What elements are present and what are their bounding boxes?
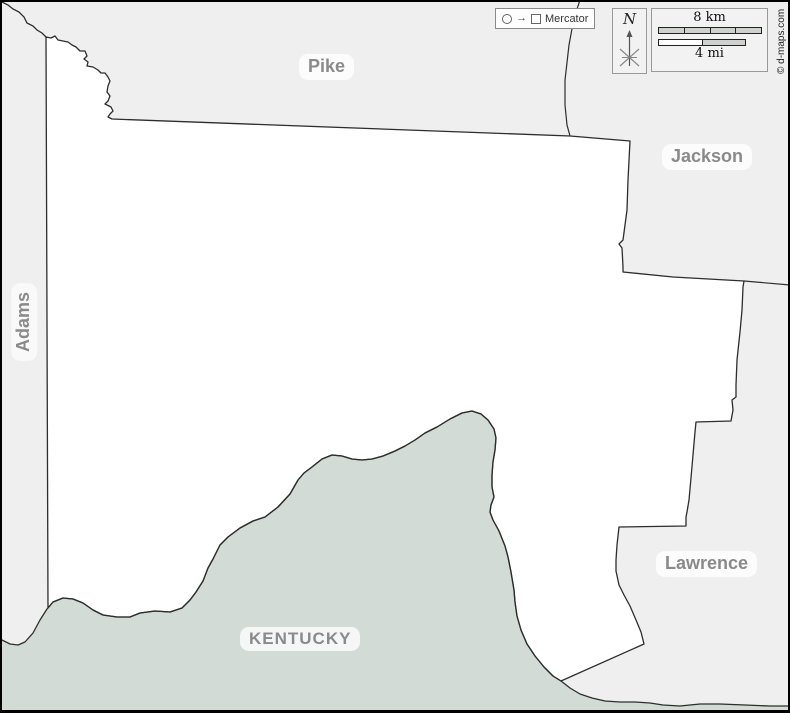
scale-bar-mi	[658, 39, 746, 46]
copyright-notice: © d-maps.com	[776, 9, 787, 74]
arrow-right-icon: →	[516, 13, 527, 24]
projection-indicator: → Mercator	[495, 8, 595, 29]
label-kentucky: KENTUCKY	[240, 627, 360, 651]
north-label: N	[613, 11, 646, 28]
scale-bar-km	[658, 27, 762, 34]
county-map: Pike Jackson Adams Lawrence KENTUCKY → M…	[0, 0, 790, 713]
projection-name: Mercator	[545, 13, 588, 25]
scale-km-label: 8 km	[652, 10, 767, 25]
map-canvas	[0, 0, 790, 713]
scale-mi-label: 4 mi	[652, 46, 767, 61]
label-lawrence: Lawrence	[656, 551, 757, 577]
north-arrow-icon	[614, 28, 645, 70]
label-pike: Pike	[299, 54, 354, 80]
sphere-icon	[502, 14, 512, 24]
label-jackson: Jackson	[662, 144, 752, 170]
flat-map-icon	[531, 14, 541, 24]
compass-rose: N	[612, 8, 647, 74]
scale-bar: 8 km 4 mi	[651, 8, 768, 72]
label-adams: Adams	[11, 283, 37, 361]
